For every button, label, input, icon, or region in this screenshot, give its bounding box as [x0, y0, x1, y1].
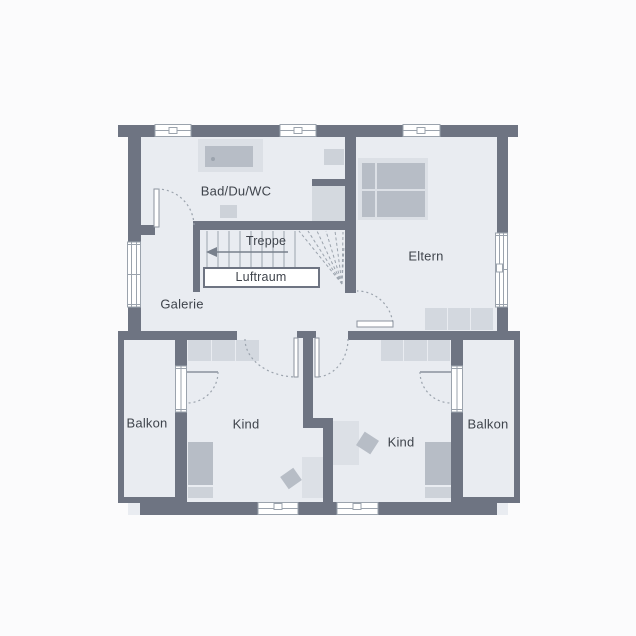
door-arc-bath: [157, 189, 194, 226]
room-label-galerie: Galerie: [160, 297, 203, 312]
door-leaf-kind-left: [294, 338, 298, 377]
door-arc-balcony-left: [187, 372, 218, 403]
room-label-kind-right: Kind: [388, 435, 415, 450]
window-icon-bottom-2: [337, 503, 378, 515]
door-leaf-bath: [154, 189, 159, 227]
door-arc-kind-left: [245, 339, 297, 377]
balcony-door-icon-right: [452, 366, 463, 412]
room-label-luftraum: Luftraum: [236, 270, 287, 284]
stair-winder-lines: [299, 231, 344, 284]
room-label-treppe: Treppe: [246, 234, 286, 248]
window-icon-bottom-1: [258, 503, 298, 515]
balcony-door-icon-left: [176, 366, 187, 412]
room-label-balkon-right: Balkon: [468, 417, 509, 432]
door-arc-kind-right: [316, 339, 348, 377]
door-leaf-eltern: [357, 321, 393, 327]
room-label-balkon-left: Balkon: [127, 416, 168, 431]
window-icon-left: [128, 242, 141, 307]
window-icon-top-1: [155, 125, 191, 137]
window-icon-top-3: [403, 125, 440, 137]
window-icon-top-2: [280, 125, 316, 137]
floorplan-canvas: Bad/Du/WC Treppe Luftraum Galerie Eltern…: [0, 0, 636, 636]
door-leaf-kind-right: [315, 338, 319, 377]
room-label-bad: Bad/Du/WC: [201, 184, 271, 199]
door-arc-balcony-right: [420, 372, 451, 403]
room-label-kind-left: Kind: [233, 417, 260, 432]
window-icon-right: [496, 233, 508, 307]
plan-linework: [0, 0, 636, 636]
room-label-eltern: Eltern: [408, 249, 443, 264]
